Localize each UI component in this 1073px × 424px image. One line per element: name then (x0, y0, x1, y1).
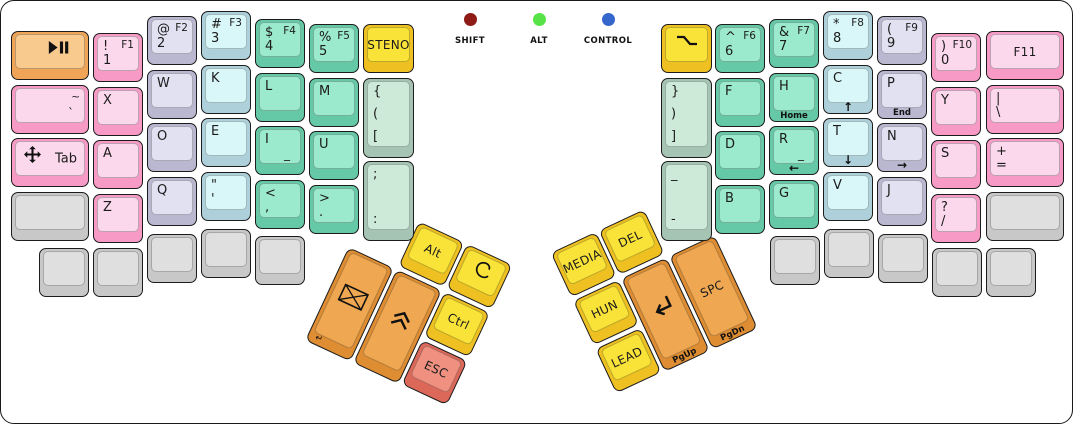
key-7[interactable]: &F77 (769, 19, 819, 68)
key-blank-left-b1[interactable] (39, 248, 89, 297)
key-m[interactable]: M (309, 78, 359, 127)
key-legend: " (211, 179, 217, 192)
keycap-top (15, 195, 85, 230)
keycap-top: Tab (15, 141, 85, 176)
indicator-alt-label: ALT (530, 36, 548, 46)
keycap-top: E (205, 121, 247, 156)
key-legend: F5 (337, 31, 350, 42)
key-w[interactable]: W (147, 70, 197, 119)
key-legend: > (319, 192, 330, 205)
keycap-top: H (773, 76, 815, 111)
keycap-top: I_ (259, 129, 301, 164)
keycap-top: M (313, 81, 355, 116)
key-blank-left-b2[interactable] (93, 248, 143, 297)
key-legend: J (887, 184, 891, 197)
keycap-top (665, 27, 708, 62)
key-legend: F4 (283, 26, 296, 37)
keycap-top (151, 237, 193, 272)
keycap-top: |\ (990, 88, 1060, 123)
keycap-top: O (151, 126, 193, 161)
key-legend: } (671, 85, 679, 98)
keycap-top: T (827, 121, 869, 156)
keycap-top: V (827, 175, 869, 210)
signal-icon (666, 28, 707, 53)
key-1[interactable]: !F11 (93, 33, 143, 82)
key-legend: X (103, 94, 112, 107)
keycap-top (990, 251, 1032, 286)
key-s[interactable]: S (931, 140, 981, 189)
key-legend: F7 (797, 26, 810, 37)
key-legend: T (833, 125, 841, 138)
key-legend: @ (157, 23, 170, 36)
keycap-top: ;: (367, 164, 410, 230)
key-legend: - (671, 213, 676, 226)
key-legend: HUN (589, 298, 619, 321)
key-legend: ; (373, 168, 377, 181)
keycap-top: DEL (604, 214, 657, 263)
keycap-top: C (827, 68, 869, 103)
key-legend: Z (103, 201, 112, 214)
key-legend: A (103, 147, 112, 160)
keycap-top: ~` (15, 88, 85, 123)
key-comma[interactable]: <, (255, 180, 305, 229)
keycap-top: D (719, 134, 761, 169)
key-8[interactable]: *F88 (823, 11, 873, 60)
key-legend: C (833, 72, 842, 85)
key-legend: ) (941, 40, 946, 53)
key-legend: [ (373, 130, 378, 143)
keycap-top (205, 232, 247, 267)
keycap-top: *F88 (827, 14, 869, 49)
key-open-brackets[interactable]: {([ (363, 78, 414, 158)
key-legend: < (265, 187, 276, 200)
key-blank-left-b4[interactable] (201, 229, 251, 278)
key-o[interactable]: O (147, 123, 197, 172)
key-n[interactable]: N→ (877, 123, 927, 172)
key-legend: ( (373, 108, 378, 121)
key-front-legend: → (878, 161, 926, 171)
key-legend: K (211, 72, 220, 85)
key-blank-left-row4[interactable] (11, 192, 89, 241)
key-legend: ESC (423, 358, 450, 379)
key-legend: S (941, 147, 949, 160)
key-legend: ] (671, 130, 676, 143)
key-slash[interactable]: ?/ (931, 194, 981, 243)
key-a[interactable]: A (93, 140, 143, 189)
key-legend: DEL (616, 228, 643, 249)
key-legend: ~ (71, 92, 80, 103)
alt-led-icon (533, 13, 546, 26)
key-p[interactable]: PEnd (877, 70, 927, 119)
key-blank-right-b1[interactable] (770, 236, 820, 285)
keycap-top: W (151, 73, 193, 108)
key-legend: ) (671, 108, 676, 121)
key-legend: | (996, 92, 1000, 105)
key-legend: SPC (698, 278, 725, 299)
keycap-top: "' (205, 175, 247, 210)
key-b[interactable]: B (715, 185, 765, 234)
key-legend: F (725, 85, 732, 98)
key-legend: B (725, 192, 734, 205)
key-j[interactable]: J (877, 177, 927, 226)
key-legend: # (211, 18, 222, 31)
key-i[interactable]: I_ (255, 126, 305, 175)
key-legend: . (319, 206, 323, 219)
key-l[interactable]: L (255, 73, 305, 122)
key-g[interactable]: G (769, 180, 819, 229)
key-legend: 7 (779, 40, 787, 53)
key-legend: $ (265, 26, 273, 39)
key-c[interactable]: C↑ (823, 65, 873, 114)
indicator-control: CONTROL (573, 13, 643, 46)
key-legend: 4 (265, 40, 273, 53)
key-minus[interactable]: _- (661, 161, 712, 241)
key-legend: ( (887, 23, 892, 36)
key-2[interactable]: @F22 (147, 16, 197, 65)
keycap-top: HUN (578, 284, 631, 333)
key-legend: M (319, 85, 330, 98)
keycap-top: ^F66 (719, 27, 761, 62)
key-tab[interactable]: Tab (11, 138, 89, 187)
key-0[interactable]: )F100 (931, 33, 981, 82)
key-legend: ! (103, 40, 108, 53)
key-legend: MEDIA (561, 247, 603, 275)
key-legend: E (211, 125, 219, 138)
key-period[interactable]: >. (309, 185, 359, 234)
indicator-alt: ALT (504, 13, 574, 46)
keycap-top: @F22 (151, 19, 193, 54)
key-legend: I (265, 133, 269, 146)
key-f[interactable]: F (715, 78, 765, 127)
key-q[interactable]: Q (147, 177, 197, 226)
key-legend: F10 (953, 40, 972, 51)
keycap-top: += (990, 141, 1060, 176)
keycap-top (259, 239, 301, 274)
keycap-top: _- (665, 164, 708, 230)
key-legend: Q (157, 184, 167, 197)
key-blank-right-b2[interactable] (824, 229, 874, 278)
key-5[interactable]: %F55 (309, 24, 359, 73)
control-led-icon (602, 13, 615, 26)
keycap-top (774, 239, 816, 274)
key-6[interactable]: ^F66 (715, 24, 765, 73)
key-front-legend: Home (770, 111, 818, 121)
key-legend: Alt (423, 241, 444, 259)
keycap-top: K (205, 68, 247, 103)
keycap-top: Y (935, 90, 977, 125)
keycap-top: })] (665, 81, 708, 147)
key-grave[interactable]: ~` (11, 85, 89, 134)
key-legend: LEAD (609, 345, 644, 370)
key-quote[interactable]: "' (201, 172, 251, 221)
key-legend: 5 (319, 45, 327, 58)
key-front-legend: ↑ (824, 103, 872, 113)
key-e[interactable]: E (201, 118, 251, 167)
keycap-top (97, 251, 139, 286)
key-legend: N (887, 130, 897, 143)
key-y[interactable]: Y (931, 87, 981, 136)
keycap-top (455, 248, 508, 297)
key-steno[interactable]: STENO (363, 24, 414, 73)
indicator-control-label: CONTROL (584, 36, 632, 46)
keycap-top: Q (151, 180, 193, 215)
key-front-legend: ← (770, 164, 818, 174)
key-legend: 2 (157, 37, 165, 50)
keycap-top: A (97, 143, 139, 178)
key-4[interactable]: $F44 (255, 19, 305, 68)
key-legend: G (779, 187, 789, 200)
key-blank-left-b3[interactable] (147, 234, 197, 283)
key-legend: F11 (1013, 46, 1036, 58)
key-legend: ? (941, 201, 948, 214)
key-legend: / (941, 215, 945, 228)
key-legend: O (157, 130, 167, 143)
key-legend: Ctrl (446, 311, 472, 331)
keycap-top (828, 232, 870, 267)
key-u[interactable]: U (309, 131, 359, 180)
key-x[interactable]: X (93, 87, 143, 136)
keycap-top: LEAD (600, 332, 653, 381)
key-3[interactable]: #F33 (201, 11, 251, 60)
play-pause-icon (16, 35, 84, 60)
key-legend: & (779, 26, 789, 39)
key-blank-right-b5[interactable] (986, 248, 1036, 297)
key-legend: Y (941, 94, 949, 107)
key-blank-right-b3[interactable] (878, 234, 928, 283)
keycap-top: U (313, 134, 355, 169)
keycap-top (882, 237, 924, 272)
key-legend: _ (798, 148, 804, 160)
key-front-legend: End (878, 108, 926, 118)
key-legend: 9 (887, 37, 895, 50)
key-f11[interactable]: F11 (986, 31, 1064, 80)
key-legend: 1 (103, 54, 111, 67)
key-v[interactable]: V (823, 172, 873, 221)
key-legend: 0 (941, 54, 949, 67)
keycap-top: )F100 (935, 36, 977, 71)
key-legend: W (157, 77, 170, 90)
key-r[interactable]: R_← (769, 126, 819, 175)
key-backslash[interactable]: |\ (986, 85, 1064, 134)
indicator-shift-label: SHIFT (455, 36, 485, 46)
key-blank-left-b5[interactable] (255, 236, 305, 285)
keycap-top: ESC (410, 344, 463, 393)
key-legend: F2 (175, 23, 188, 34)
key-legend: P (887, 77, 895, 90)
keycap-top: J (881, 180, 923, 215)
key-equals[interactable]: += (986, 138, 1064, 187)
keycap-top: F11 (990, 34, 1060, 69)
keycap-top: >. (313, 188, 355, 223)
key-h[interactable]: HHome (769, 73, 819, 122)
key-legend: F1 (121, 40, 134, 51)
key-legend: H (779, 80, 789, 93)
key-legend: F9 (905, 23, 918, 34)
keycap-top (43, 251, 85, 286)
key-blank-right-b4[interactable] (932, 248, 982, 297)
key-legend: = (996, 159, 1007, 172)
key-legend: U (319, 138, 329, 151)
shift-led-icon (464, 13, 477, 26)
key-legend: V (833, 179, 842, 192)
keycap-top: F (719, 81, 761, 116)
key-legend: R (779, 133, 788, 146)
key-legend: { (373, 85, 381, 98)
key-legend: + (996, 145, 1007, 158)
keycap-top: MEDIA (556, 236, 609, 285)
key-legend: * (833, 18, 840, 31)
keycap-top: #F33 (205, 14, 247, 49)
key-legend: F6 (743, 31, 756, 42)
keycap-top: B (719, 188, 761, 223)
key-layer[interactable] (661, 24, 712, 73)
key-front-legend: ↓ (824, 156, 872, 166)
spiral-icon (459, 250, 506, 290)
key-legend: F8 (851, 18, 864, 29)
key-legend: L (265, 80, 272, 93)
key-legend: ` (68, 107, 74, 119)
keycap-top: &F77 (773, 22, 815, 57)
key-legend: ' (211, 193, 215, 206)
keyboard-board: SHIFT ALT CONTROL Alt↵CtrlESC MEDIADELHU… (0, 0, 1073, 424)
keycap-top: Alt (407, 226, 460, 275)
key-legend: D (725, 138, 735, 151)
key-legend: 6 (725, 45, 733, 58)
key-legend: % (319, 31, 331, 44)
key-semicolon[interactable]: ;: (363, 161, 414, 241)
key-legend: _ (284, 148, 290, 160)
keycap-top: L (259, 76, 301, 111)
key-9[interactable]: (F99 (877, 16, 927, 65)
indicator-shift: SHIFT (435, 13, 505, 46)
keycap-top: !F11 (97, 36, 139, 71)
keycap-top: G (773, 183, 815, 218)
keycap-top: Ctrl (432, 296, 485, 345)
keycap-top (990, 195, 1060, 230)
keycap-top: %F55 (313, 27, 355, 62)
key-legend: : (373, 213, 377, 226)
keycap-top: STENO (367, 27, 410, 62)
key-t[interactable]: T↓ (823, 118, 873, 167)
keycap-top: {([ (367, 81, 410, 147)
keycap-top: R_ (773, 129, 815, 164)
key-legend: 3 (211, 32, 219, 45)
keycap-top (936, 251, 978, 286)
keycap-top: N (881, 126, 923, 161)
key-close-brackets[interactable]: })] (661, 78, 712, 158)
key-legend: 8 (833, 32, 841, 45)
key-legend: _ (671, 168, 678, 181)
keycap-top: X (97, 90, 139, 125)
key-k[interactable]: K (201, 65, 251, 114)
key-legend: STENO (367, 39, 409, 51)
keycap-top: P (881, 73, 923, 108)
keycap-top (15, 34, 85, 69)
keycap-top: Z (97, 197, 139, 232)
keycap-top: ?/ (935, 197, 977, 232)
keycap-top: S (935, 143, 977, 178)
key-legend: ^ (725, 31, 736, 44)
key-z[interactable]: Z (93, 194, 143, 243)
keycap-top: (F99 (881, 19, 923, 54)
key-legend: F3 (229, 18, 242, 29)
keycap-top: $F44 (259, 22, 301, 57)
key-d[interactable]: D (715, 131, 765, 180)
key-legend: \ (996, 106, 1000, 119)
key-play-pause[interactable] (11, 31, 89, 80)
keycap-top: <, (259, 183, 301, 218)
key-blank-right-row4[interactable] (986, 192, 1064, 241)
key-legend: , (265, 201, 269, 214)
move-icon (16, 142, 84, 167)
